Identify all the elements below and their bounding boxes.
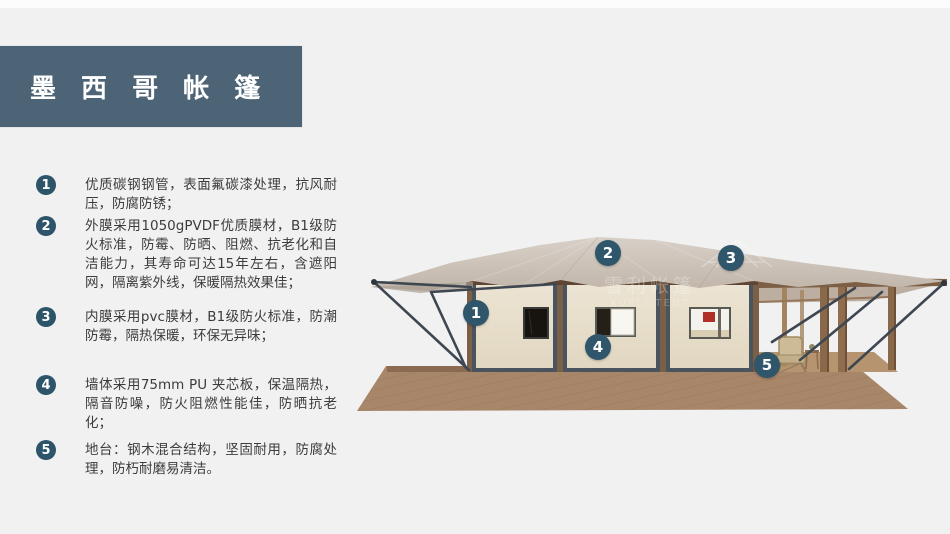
callout-marker-5: 5 <box>754 352 780 378</box>
feature-item-1: 1 优质碳钢钢管，表面氟碳漆处理，抗风耐压，防腐防锈； <box>36 176 338 214</box>
feature-item-3: 3 内膜采用pvc膜材，B1级防火标准，防潮防霉，隔热保暖，环保无异味； <box>36 308 338 346</box>
feature-text: 墙体采用75mm PU 夹芯板，保温隔热，隔音防噪，防火阻燃性能佳，防晒抗老化； <box>85 376 337 433</box>
corner-post <box>556 280 564 372</box>
callout-marker-4: 4 <box>585 334 611 360</box>
tent-illustration: 雪利帐篷 XUELI TENT <box>355 225 950 425</box>
wall-module-1 <box>472 279 557 372</box>
watermark-cn: 雪利帐篷 <box>604 275 696 297</box>
feature-text: 外膜采用1050gPVDF优质膜材，B1级防火标准，防霉、防晒、阻燃、抗老化和自… <box>85 217 337 293</box>
window-mullion <box>718 309 721 337</box>
slide-background: 墨 西 哥 帐 篷 1 优质碳钢钢管，表面氟碳漆处理，抗风耐压，防腐防锈； 2 … <box>0 0 950 534</box>
window-module-1 <box>525 309 547 337</box>
window-sash <box>611 309 634 335</box>
window-open-part <box>597 309 611 335</box>
rod-joint <box>941 280 947 286</box>
feature-number-badge: 4 <box>36 375 56 395</box>
feature-number-badge: 1 <box>36 175 56 195</box>
callout-marker-2: 2 <box>595 240 621 266</box>
deck-platform <box>357 366 908 411</box>
feature-text: 优质碳钢钢管，表面氟碳漆处理，抗风耐压，防腐防锈； <box>85 176 337 214</box>
rod-joint <box>371 279 377 285</box>
title-banner: 墨 西 哥 帐 篷 <box>0 46 302 127</box>
feature-number-badge: 2 <box>36 216 56 236</box>
feature-item-2: 2 外膜采用1050gPVDF优质膜材，B1级防火标准，防霉、防晒、阻燃、抗老化… <box>36 217 338 293</box>
deck-shadow <box>387 366 470 372</box>
feature-item-5: 5 地台：钢木混合结构，坚固耐用，防腐处理，防朽耐磨易清洁。 <box>36 441 338 479</box>
window-interior <box>691 330 729 337</box>
feature-number-badge: 3 <box>36 307 56 327</box>
callout-marker-1: 1 <box>463 300 489 326</box>
feature-text: 地台：钢木混合结构，坚固耐用，防腐处理，防朽耐磨易清洁。 <box>85 441 337 479</box>
page-title: 墨 西 哥 帐 篷 <box>0 68 268 105</box>
watermark-en: XUELI TENT <box>610 298 690 309</box>
top-strip <box>0 0 950 8</box>
feature-item-4: 4 墙体采用75mm PU 夹芯板，保温隔热，隔音防噪，防火阻燃性能佳，防晒抗老… <box>36 376 338 433</box>
feature-text: 内膜采用pvc膜材，B1级防火标准，防潮防霉，隔热保暖，环保无异味； <box>85 308 337 346</box>
red-sign <box>703 312 715 322</box>
feature-number-badge: 5 <box>36 440 56 460</box>
callout-marker-3: 3 <box>718 245 744 271</box>
